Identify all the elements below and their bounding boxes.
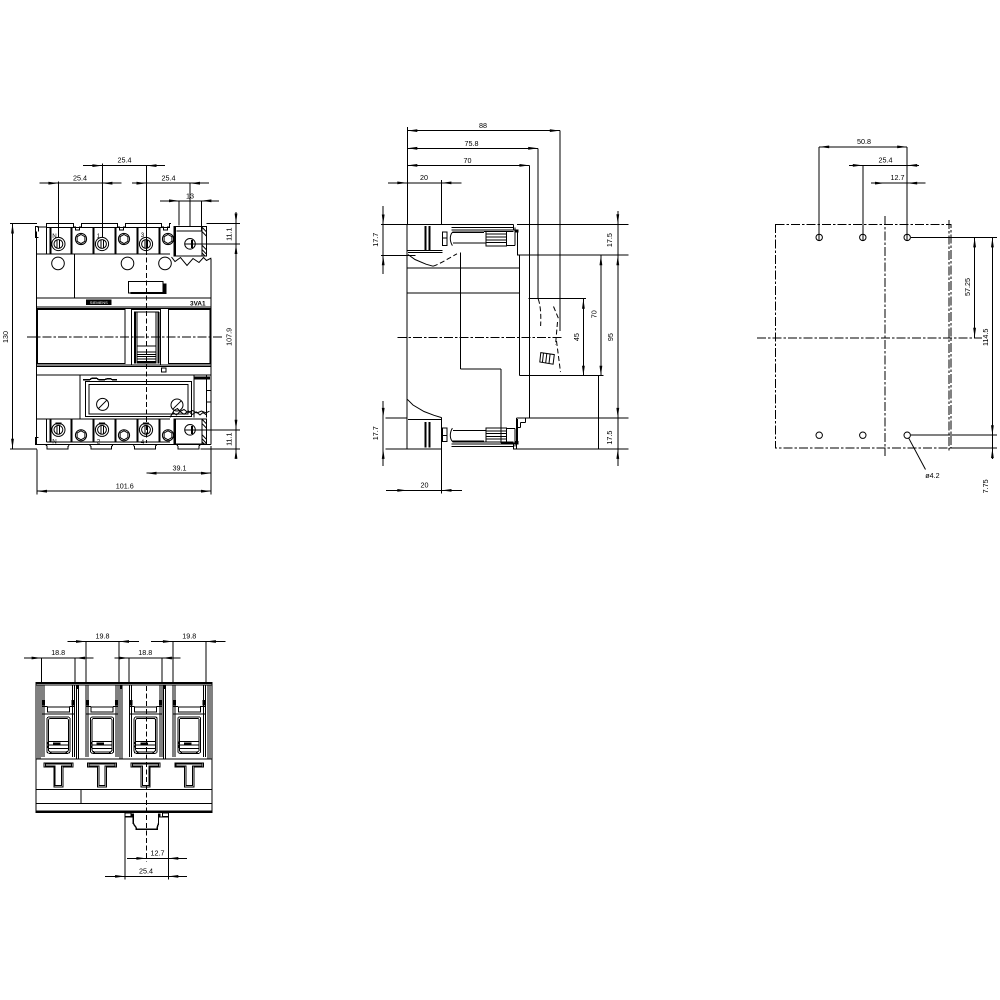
svg-text:75.8: 75.8 bbox=[465, 139, 479, 148]
svg-text:20: 20 bbox=[421, 481, 429, 490]
svg-text:3: 3 bbox=[141, 232, 145, 239]
svg-text:18.8: 18.8 bbox=[51, 648, 65, 657]
svg-text:114.5: 114.5 bbox=[981, 329, 990, 346]
svg-text:N: N bbox=[52, 233, 56, 240]
svg-text:19.8: 19.8 bbox=[182, 632, 196, 641]
svg-text:17.5: 17.5 bbox=[605, 431, 614, 445]
svg-text:25.4: 25.4 bbox=[162, 173, 176, 182]
svg-text:17.5: 17.5 bbox=[605, 233, 614, 247]
svg-text:88: 88 bbox=[479, 121, 487, 130]
svg-text:17.7: 17.7 bbox=[371, 426, 380, 440]
svg-text:7.75: 7.75 bbox=[981, 479, 990, 493]
svg-text:17.7: 17.7 bbox=[371, 233, 380, 247]
svg-text:25.4: 25.4 bbox=[73, 173, 87, 182]
svg-text:25.4: 25.4 bbox=[118, 156, 132, 165]
svg-text:50.8: 50.8 bbox=[857, 137, 871, 146]
svg-text:11.1: 11.1 bbox=[225, 432, 234, 445]
svg-text:95: 95 bbox=[606, 333, 615, 341]
svg-text:45: 45 bbox=[572, 333, 581, 341]
svg-text:20: 20 bbox=[420, 173, 428, 182]
svg-text:13: 13 bbox=[186, 191, 194, 200]
svg-text:57.25: 57.25 bbox=[963, 278, 972, 296]
svg-text:19.8: 19.8 bbox=[96, 632, 110, 641]
svg-text:2: 2 bbox=[97, 439, 101, 446]
svg-text:107.9: 107.9 bbox=[225, 328, 234, 346]
svg-text:11.1: 11.1 bbox=[225, 227, 234, 240]
svg-text:130: 130 bbox=[1, 331, 10, 343]
svg-text:N: N bbox=[52, 439, 56, 446]
svg-text:3VA1: 3VA1 bbox=[190, 301, 206, 308]
svg-text:1: 1 bbox=[97, 233, 101, 240]
svg-text:39.1: 39.1 bbox=[173, 463, 187, 472]
svg-text:18.8: 18.8 bbox=[138, 648, 152, 657]
svg-text:25.4: 25.4 bbox=[879, 156, 893, 165]
svg-text:25.4: 25.4 bbox=[139, 867, 153, 876]
svg-text:12.7: 12.7 bbox=[151, 849, 165, 858]
svg-text:12.7: 12.7 bbox=[891, 173, 905, 182]
svg-text:70: 70 bbox=[464, 156, 472, 165]
svg-text:4: 4 bbox=[141, 439, 145, 446]
svg-text:ø4.2: ø4.2 bbox=[925, 471, 939, 480]
svg-text:70: 70 bbox=[589, 310, 598, 318]
svg-text:SIEMENS: SIEMENS bbox=[90, 300, 108, 305]
svg-text:101.6: 101.6 bbox=[116, 481, 134, 490]
